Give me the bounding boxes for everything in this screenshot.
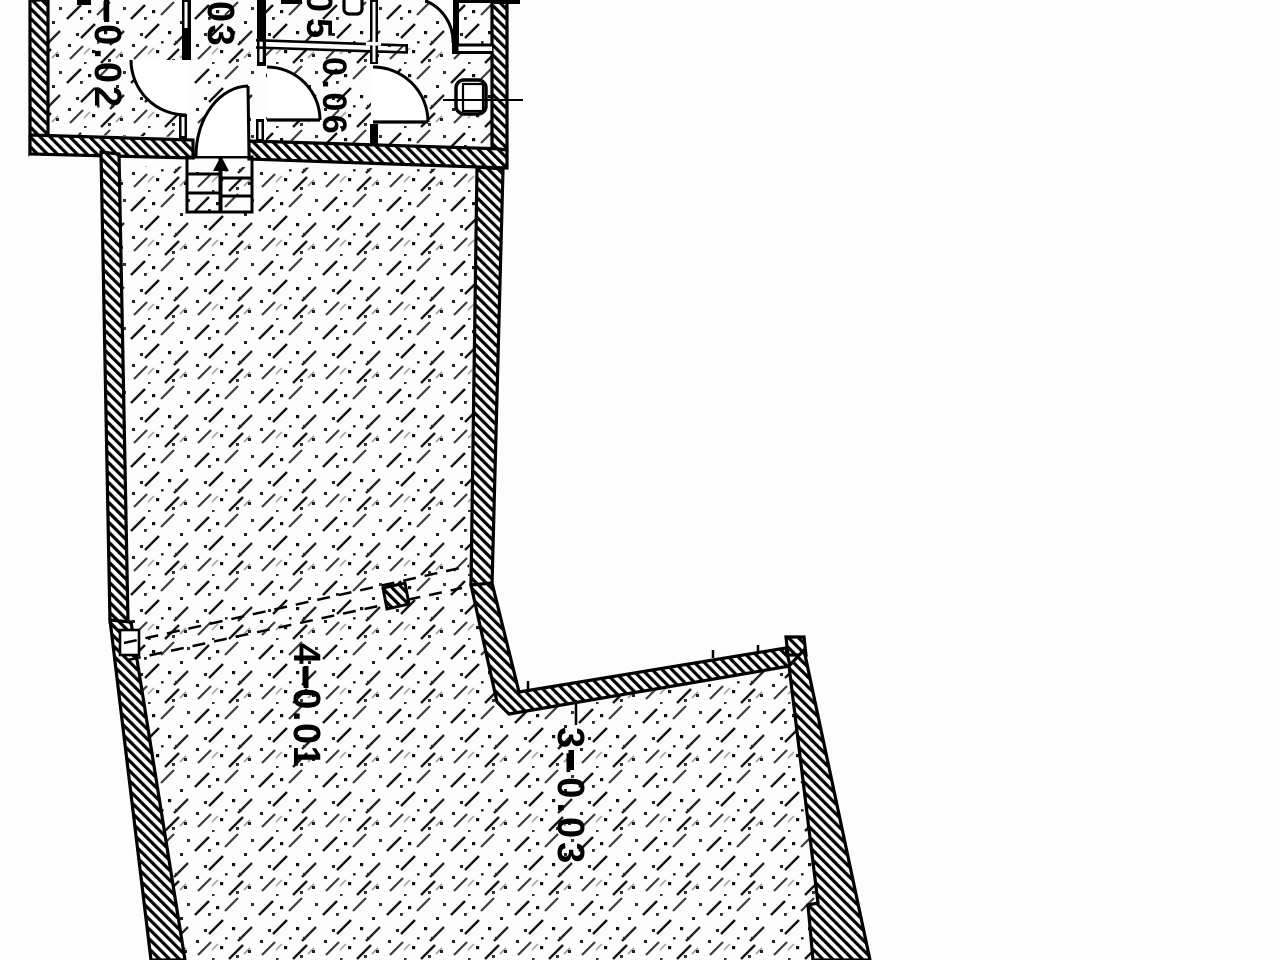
svg-text:3–0.03: 3–0.03 [549,727,591,867]
svg-text:03: 03 [199,1,241,48]
svg-text:0.06: 0.06 [315,57,353,137]
svg-text:4–0.01: 4–0.01 [285,643,327,768]
svg-text:0.05: 0.05 [299,0,340,44]
